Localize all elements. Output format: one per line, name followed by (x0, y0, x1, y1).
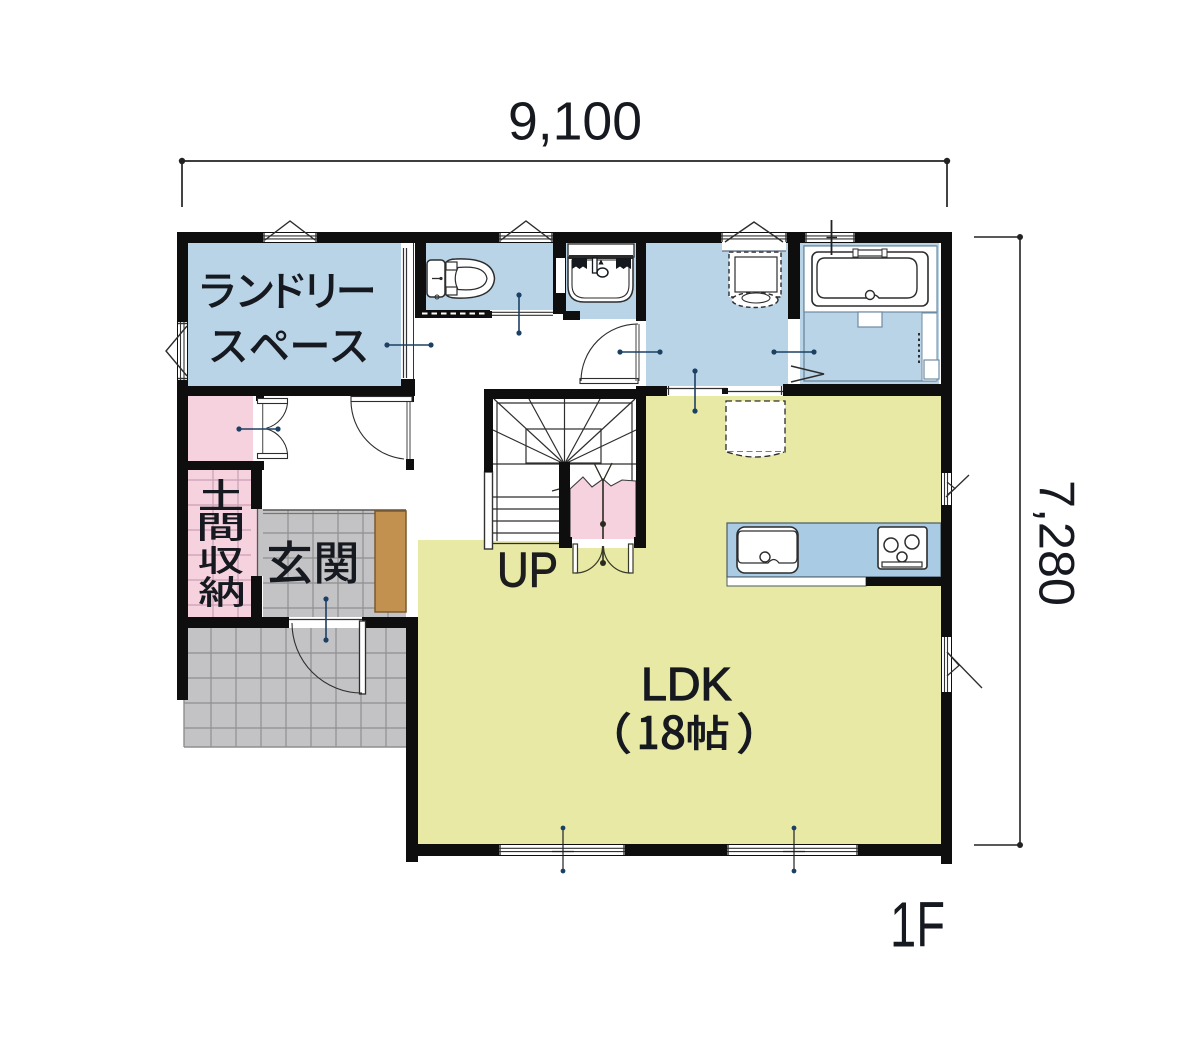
svg-text:7,280: 7,280 (1029, 480, 1086, 606)
svg-text:1F: 1F (890, 889, 945, 961)
svg-text:9,100: 9,100 (508, 92, 642, 152)
svg-text:UP: UP (497, 544, 558, 598)
svg-text:LDK: LDK (641, 658, 732, 710)
